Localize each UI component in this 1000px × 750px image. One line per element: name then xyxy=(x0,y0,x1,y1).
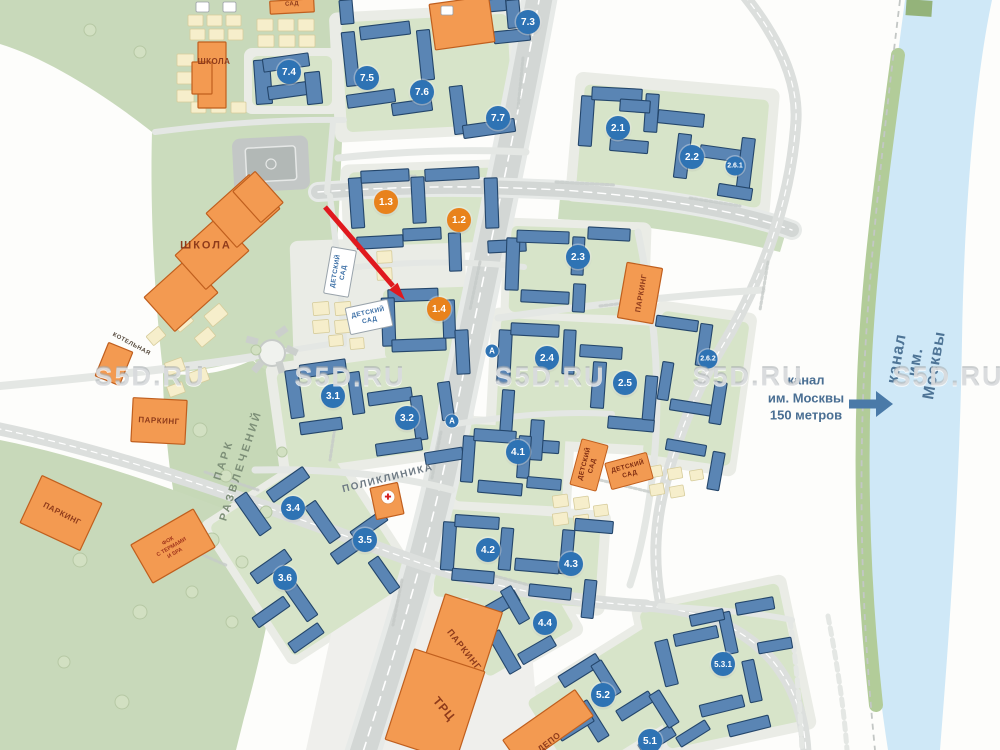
social-building xyxy=(270,0,315,14)
block-marker-3.1[interactable]: 3.1 xyxy=(321,384,345,408)
planned-building xyxy=(573,496,590,510)
residential-building xyxy=(578,96,594,147)
block-marker-4.4[interactable]: 4.4 xyxy=(533,611,557,635)
residential-building xyxy=(357,235,404,249)
planned-building xyxy=(312,319,329,333)
block-marker-2.5[interactable]: 2.5 xyxy=(613,371,637,395)
planned-building xyxy=(649,483,665,496)
residential-building xyxy=(460,436,475,483)
residential-building xyxy=(588,227,631,241)
residential-building xyxy=(517,230,569,244)
block-marker-7.5[interactable]: 7.5 xyxy=(355,66,379,90)
planned-building xyxy=(279,35,295,47)
block-marker-7.4[interactable]: 7.4 xyxy=(277,60,301,84)
block-marker-4.3[interactable]: 4.3 xyxy=(559,552,583,576)
block-marker-3.5[interactable]: 3.5 xyxy=(353,528,377,552)
block-marker-3.6[interactable]: 3.6 xyxy=(273,566,297,590)
social-building xyxy=(192,62,212,94)
bus-stop-marker: А xyxy=(446,415,459,428)
block-marker-5.3.1[interactable]: 5.3.1 xyxy=(711,652,735,676)
planned-building xyxy=(258,35,274,47)
residential-building xyxy=(580,345,623,360)
bus-stop-marker: А xyxy=(486,345,499,358)
block-ground xyxy=(298,239,366,349)
block-marker-2.6.2[interactable]: 2.6.2 xyxy=(699,350,718,369)
block-marker-1.2[interactable]: 1.2 xyxy=(447,208,471,232)
social-building xyxy=(429,0,495,50)
planned-building xyxy=(329,334,344,346)
planned-building xyxy=(689,469,704,481)
block-marker-2.6.1[interactable]: 2.6.1 xyxy=(726,157,745,176)
block-marker-5.1[interactable]: 5.1 xyxy=(638,729,662,750)
planned-building xyxy=(593,504,608,517)
residential-building xyxy=(455,330,470,375)
block-marker-2.2[interactable]: 2.2 xyxy=(680,145,704,169)
planned-building xyxy=(334,301,351,315)
planned-building xyxy=(278,19,294,31)
planned-building xyxy=(231,102,246,113)
block-marker-4.1[interactable]: 4.1 xyxy=(506,440,530,464)
social-building xyxy=(370,482,404,519)
residential-building xyxy=(505,238,520,290)
residential-building xyxy=(572,284,585,313)
planned-building xyxy=(298,19,314,31)
planned-building xyxy=(299,35,315,47)
block-marker-1.3[interactable]: 1.3 xyxy=(374,190,398,214)
planned-building xyxy=(312,301,329,315)
block-marker-7.3[interactable]: 7.3 xyxy=(516,10,540,34)
planned-building xyxy=(377,251,393,264)
planned-building xyxy=(207,15,222,26)
planned-building xyxy=(209,29,224,40)
planned-building xyxy=(552,494,569,508)
block-marker-7.6[interactable]: 7.6 xyxy=(410,80,434,104)
planned-building xyxy=(188,15,203,26)
residential-building xyxy=(403,227,442,241)
residential-building xyxy=(562,330,576,375)
block-marker-4.2[interactable]: 4.2 xyxy=(476,538,500,562)
block-marker-2.4[interactable]: 2.4 xyxy=(535,346,559,370)
planned-building xyxy=(669,485,685,498)
planned-building xyxy=(647,465,663,478)
block-marker-2.1[interactable]: 2.1 xyxy=(606,116,630,140)
planned-building xyxy=(334,319,351,333)
residential-building xyxy=(527,477,562,491)
planned-building xyxy=(226,15,241,26)
block-marker-1.4[interactable]: 1.4 xyxy=(427,297,451,321)
residential-building xyxy=(304,71,322,104)
residential-building xyxy=(392,338,446,352)
residential-building xyxy=(620,99,651,113)
residential-building xyxy=(474,429,517,444)
planned-building xyxy=(667,467,683,480)
residential-building xyxy=(484,178,499,228)
residential-building xyxy=(348,178,364,229)
residential-building xyxy=(521,290,570,304)
residential-building xyxy=(411,177,426,224)
residential-building xyxy=(361,169,410,183)
block-marker-7.7[interactable]: 7.7 xyxy=(486,106,510,130)
residential-building xyxy=(575,518,614,533)
planned-building xyxy=(552,512,569,526)
planned-building xyxy=(350,337,365,349)
planned-building xyxy=(257,19,273,31)
masterplan-map: ШКОЛАСАДШКОЛАКОТЕЛЬНАЯПАРКИНГПАРКИНГПАРК… xyxy=(0,0,1000,750)
block-marker-3.2[interactable]: 3.2 xyxy=(395,406,419,430)
residential-building xyxy=(497,330,513,385)
block-marker-2.3[interactable]: 2.3 xyxy=(566,245,590,269)
residential-building xyxy=(425,167,480,182)
social-building xyxy=(131,398,187,445)
residential-building xyxy=(339,0,354,25)
residential-building xyxy=(590,362,606,409)
residential-building xyxy=(511,323,560,337)
residential-building xyxy=(440,522,456,571)
block-marker-5.2[interactable]: 5.2 xyxy=(591,683,615,707)
residential-building xyxy=(610,138,649,153)
residential-building xyxy=(448,233,461,271)
residential-building xyxy=(381,298,396,346)
planned-building xyxy=(190,29,205,40)
block-marker-3.4[interactable]: 3.4 xyxy=(281,496,305,520)
residential-building xyxy=(455,514,500,529)
planned-building xyxy=(228,29,243,40)
